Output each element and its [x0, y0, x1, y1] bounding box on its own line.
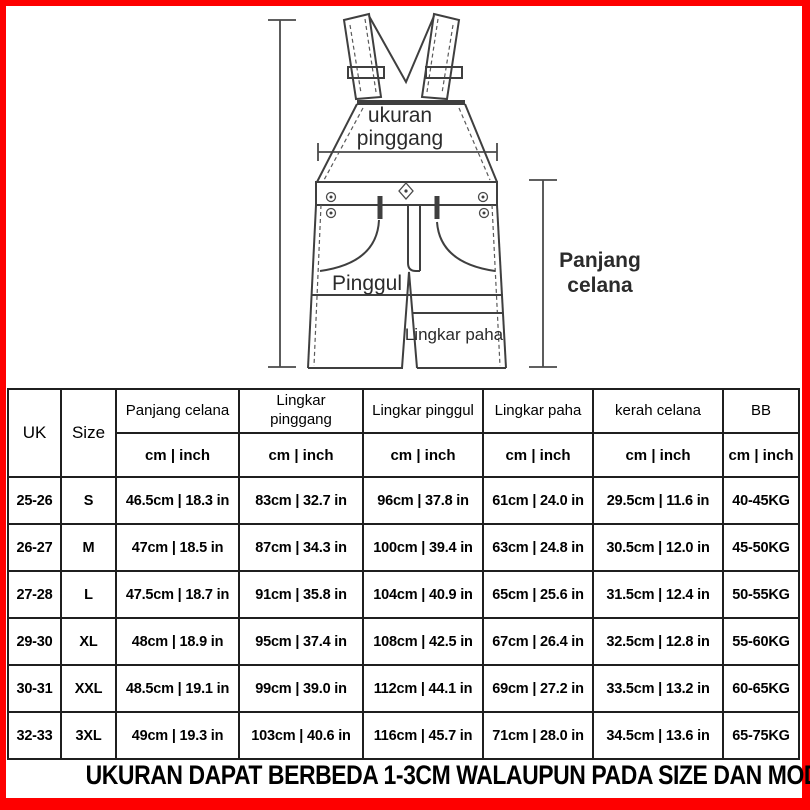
- cell-value: 103cm | 40.6 in: [239, 712, 363, 759]
- cell-value: 65cm | 25.6 in: [483, 571, 593, 618]
- table-row-3xl: 32-33 3XL 49cm | 19.3 in 103cm | 40.6 in…: [8, 712, 799, 759]
- header-lingkar-pinggang: Lingkar pinggang: [239, 389, 363, 433]
- cell-size: XXL: [61, 665, 116, 712]
- header-row-units: cm | inch cm | inch cm | inch cm | inch …: [8, 433, 799, 477]
- left-dimension-line: [268, 20, 296, 367]
- unit-cell: cm | inch: [483, 433, 593, 477]
- header-lingkar-pinggul: Lingkar pinggul: [363, 389, 483, 433]
- table-row-l: 27-28 L 47.5cm | 18.7 in 91cm | 35.8 in …: [8, 571, 799, 618]
- overalls-diagram: ukuran pinggang Pinggul Lingkar paha Pan…: [0, 0, 810, 385]
- cell-value: 104cm | 40.9 in: [363, 571, 483, 618]
- waist-label-line2: pinggang: [357, 127, 443, 150]
- cell-value: 48.5cm | 19.1 in: [116, 665, 239, 712]
- disclaimer: UKURAN DAPAT BERBEDA 1-3CM WALAUPUN PADA…: [6, 760, 802, 790]
- thigh-label: Lingkar paha: [405, 325, 504, 344]
- cell-value: 83cm | 32.7 in: [239, 477, 363, 524]
- cell-weight: 50-55KG: [723, 571, 799, 618]
- unit-cell: cm | inch: [593, 433, 723, 477]
- cell-value: 33.5cm | 13.2 in: [593, 665, 723, 712]
- cell-uk: 30-31: [8, 665, 61, 712]
- unit-cell: cm | inch: [239, 433, 363, 477]
- cell-size: 3XL: [61, 712, 116, 759]
- cell-value: 67cm | 26.4 in: [483, 618, 593, 665]
- size-table: UK Size Panjang celana Lingkar pinggang …: [7, 388, 800, 760]
- pant-length-label-line2: celana: [567, 274, 633, 297]
- cell-weight: 55-60KG: [723, 618, 799, 665]
- straps: [344, 14, 462, 99]
- header-size: Size: [61, 389, 116, 477]
- left-pocket-curve: [320, 220, 379, 271]
- cell-value: 30.5cm | 12.0 in: [593, 524, 723, 571]
- cell-weight: 45-50KG: [723, 524, 799, 571]
- cell-value: 49cm | 19.3 in: [116, 712, 239, 759]
- right-dimension-line: [529, 180, 557, 367]
- waist-label-line1: ukuran: [368, 104, 432, 127]
- cell-value: 32.5cm | 12.8 in: [593, 618, 723, 665]
- size-chart-page: { "colors": { "border": "#fe0000", "line…: [0, 0, 810, 810]
- cell-value: 116cm | 45.7 in: [363, 712, 483, 759]
- cell-value: 99cm | 39.0 in: [239, 665, 363, 712]
- pant-length-label-line1: Panjang: [559, 249, 641, 272]
- header-lingkar-pinggang-text: Lingkar pinggang: [261, 392, 341, 430]
- header-row-labels: UK Size Panjang celana Lingkar pinggang …: [8, 389, 799, 433]
- cell-size: M: [61, 524, 116, 571]
- header-kerah-celana: kerah celana: [593, 389, 723, 433]
- header-uk: UK: [8, 389, 61, 477]
- strap-v-edge: [369, 16, 434, 82]
- right-pocket-curve: [437, 222, 495, 271]
- cell-value: 61cm | 24.0 in: [483, 477, 593, 524]
- cell-size: L: [61, 571, 116, 618]
- cell-value: 87cm | 34.3 in: [239, 524, 363, 571]
- cell-weight: 40-45KG: [723, 477, 799, 524]
- cell-value: 96cm | 37.8 in: [363, 477, 483, 524]
- right-buckle: [426, 67, 462, 78]
- cell-value: 69cm | 27.2 in: [483, 665, 593, 712]
- table-row-xl: 29-30 XL 48cm | 18.9 in 95cm | 37.4 in 1…: [8, 618, 799, 665]
- cell-size: S: [61, 477, 116, 524]
- crotch-seam: [402, 272, 417, 368]
- waistband: [316, 182, 497, 219]
- cell-uk: 26-27: [8, 524, 61, 571]
- cell-value: 91cm | 35.8 in: [239, 571, 363, 618]
- cell-value: 95cm | 37.4 in: [239, 618, 363, 665]
- cell-uk: 25-26: [8, 477, 61, 524]
- cell-value: 47.5cm | 18.7 in: [116, 571, 239, 618]
- unit-cell: cm | inch: [363, 433, 483, 477]
- cell-uk: 27-28: [8, 571, 61, 618]
- cell-value: 29.5cm | 11.6 in: [593, 477, 723, 524]
- disclaimer-text: UKURAN DAPAT BERBEDA 1-3CM WALAUPUN PADA…: [86, 760, 810, 790]
- cell-value: 71cm | 28.0 in: [483, 712, 593, 759]
- hip-label: Pinggul: [332, 272, 402, 295]
- cell-weight: 60-65KG: [723, 665, 799, 712]
- cell-value: 31.5cm | 12.4 in: [593, 571, 723, 618]
- cell-value: 46.5cm | 18.3 in: [116, 477, 239, 524]
- cell-weight: 65-75KG: [723, 712, 799, 759]
- unit-cell: cm | inch: [116, 433, 239, 477]
- cell-value: 112cm | 44.1 in: [363, 665, 483, 712]
- unit-cell: cm | inch: [723, 433, 799, 477]
- cell-uk: 32-33: [8, 712, 61, 759]
- header-lingkar-paha: Lingkar paha: [483, 389, 593, 433]
- cell-value: 47cm | 18.5 in: [116, 524, 239, 571]
- cell-size: XL: [61, 618, 116, 665]
- cell-uk: 29-30: [8, 618, 61, 665]
- cell-value: 100cm | 39.4 in: [363, 524, 483, 571]
- cell-value: 48cm | 18.9 in: [116, 618, 239, 665]
- cell-value: 108cm | 42.5 in: [363, 618, 483, 665]
- cell-value: 34.5cm | 13.6 in: [593, 712, 723, 759]
- cell-value: 63cm | 24.8 in: [483, 524, 593, 571]
- table-row-xxl: 30-31 XXL 48.5cm | 19.1 in 99cm | 39.0 i…: [8, 665, 799, 712]
- header-bb: BB: [723, 389, 799, 433]
- table-row-s: 25-26 S 46.5cm | 18.3 in 83cm | 32.7 in …: [8, 477, 799, 524]
- header-panjang-celana: Panjang celana: [116, 389, 239, 433]
- table-row-m: 26-27 M 47cm | 18.5 in 87cm | 34.3 in 10…: [8, 524, 799, 571]
- fly-seam: [408, 205, 420, 271]
